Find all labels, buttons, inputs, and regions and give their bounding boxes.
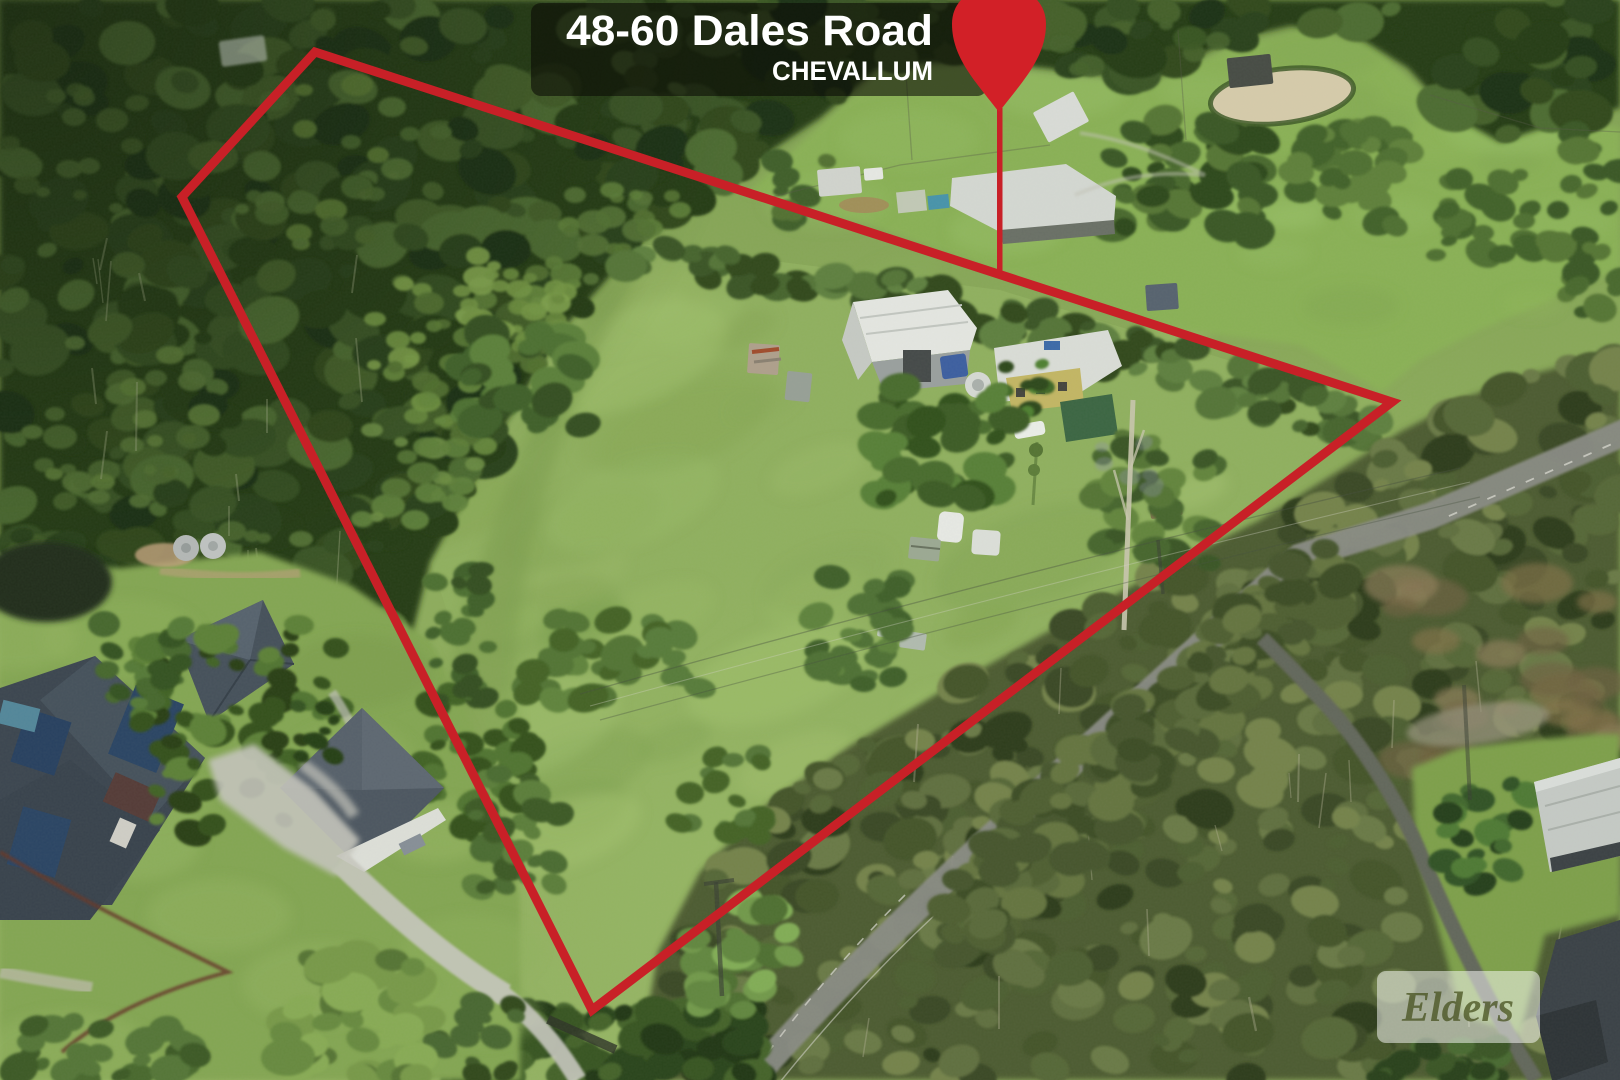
svg-text:48-60 Dales Road: 48-60 Dales Road	[566, 7, 933, 55]
svg-text:Elders: Elders	[1401, 985, 1514, 1031]
svg-text:CHEVALLUM: CHEVALLUM	[772, 56, 933, 86]
